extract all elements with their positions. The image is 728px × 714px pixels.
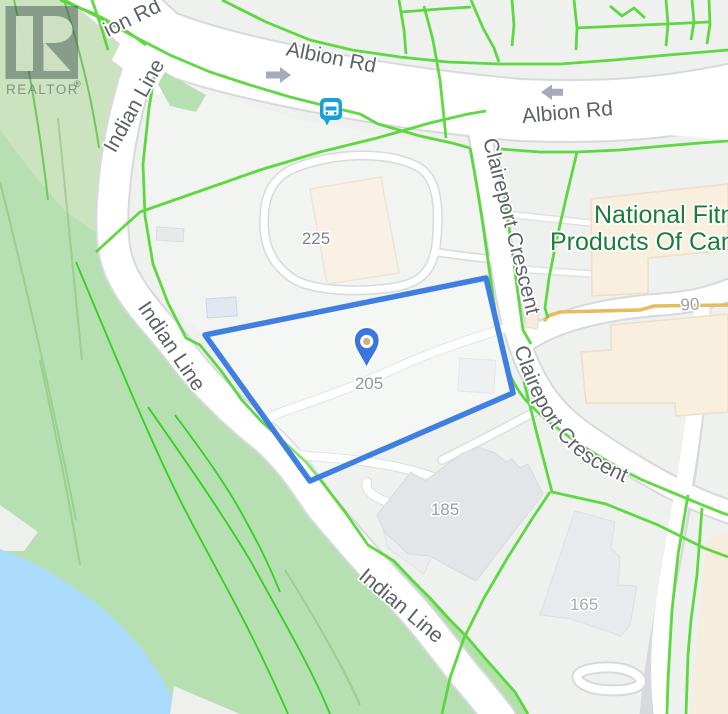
svg-text:165: 165 (570, 595, 598, 614)
svg-text:National Fitne: National Fitne (594, 201, 728, 229)
svg-text:®: ® (74, 79, 81, 89)
svg-text:225: 225 (302, 229, 330, 248)
svg-text:Products Of Can: Products Of Can (550, 228, 728, 256)
svg-text:90: 90 (680, 294, 700, 314)
svg-text:REALTOR: REALTOR (6, 82, 79, 97)
svg-text:185: 185 (431, 500, 459, 519)
